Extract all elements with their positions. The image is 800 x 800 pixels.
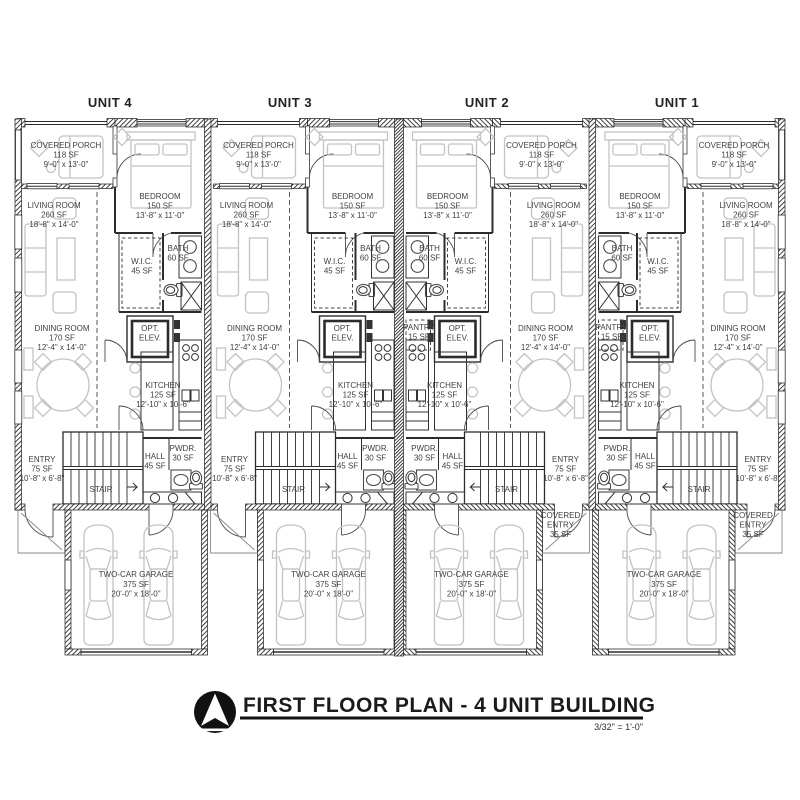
label-entry-u1: ENTRY	[745, 455, 773, 464]
label-covered_porch-u1: COVERED PORCH	[699, 141, 770, 150]
label-dining_room-u4: 170 SF	[49, 334, 75, 343]
label-powder-u1: 30 SF	[606, 454, 627, 463]
label-garage-u4: TWO-CAR GARAGE	[99, 570, 174, 579]
label-hall-u2: 45 SF	[442, 462, 463, 471]
label-entry-u4: 75 SF	[31, 465, 52, 474]
floor-plan-page: UNIT 4COVERED PORCH118 SF9'-0" x 13'-0"B…	[0, 0, 800, 800]
label-dining_room-u1: 12'-4" x 14'-0"	[713, 343, 762, 352]
label-kitchen-u4: 125 SF	[150, 391, 176, 400]
label-dining_room-u3: DINING ROOM	[227, 324, 282, 333]
label-opt_elev-u4: ELEV.	[139, 334, 161, 343]
label-garage-u2: TWO-CAR GARAGE	[434, 570, 509, 579]
label-garage-u3: 20'-0" x 18'-0"	[304, 590, 353, 599]
label-kitchen-u1: KITCHEN	[619, 381, 654, 390]
label-wic-u3: W.I.C.	[324, 257, 346, 266]
label-kitchen-u3: 125 SF	[343, 391, 369, 400]
label-kitchen-u2: KITCHEN	[427, 381, 462, 390]
plan-scale: 3/32" = 1'-0"	[594, 722, 643, 732]
label-powder-u3: PWDR.	[362, 444, 389, 453]
label-stair-u4: STAIR	[90, 485, 113, 494]
label-bedroom-u4: BEDROOM	[139, 192, 181, 201]
label-living_room-u2: 260 SF	[541, 211, 567, 220]
label-bath-u4: 60 SF	[167, 254, 188, 263]
label-opt_elev-u3: ELEV.	[332, 334, 354, 343]
label-pantry-u2: 15 SF	[408, 333, 429, 342]
label-garage-u2: 20'-0" x 18'-0"	[447, 590, 496, 599]
floor-plan-drawing: UNIT 4COVERED PORCH118 SF9'-0" x 13'-0"B…	[0, 0, 800, 800]
label-bath-u4: BATH	[168, 244, 189, 253]
label-wic-u2: 45 SF	[455, 267, 476, 276]
label-garage-u3: TWO-CAR GARAGE	[291, 570, 366, 579]
north-arrow-icon	[194, 691, 236, 733]
label-covered_porch-u4: 118 SF	[53, 151, 78, 160]
label-entry-u4: 10'-8" x 6'-8"	[20, 474, 65, 483]
label-dining_room-u3: 170 SF	[242, 334, 268, 343]
label-covered_entry-u2: ENTRY	[547, 521, 575, 530]
label-entry-u1: 75 SF	[747, 465, 768, 474]
label-opt_elev-u1: ELEV.	[639, 334, 661, 343]
label-powder-u1: PWDR.	[604, 444, 631, 453]
label-living_room-u2: 18'-8" x 14'-0"	[529, 220, 578, 229]
label-bedroom-u2: BEDROOM	[427, 192, 469, 201]
label-powder-u4: 30 SF	[172, 454, 193, 463]
label-dining_room-u2: 12'-4" x 14'-0"	[521, 343, 570, 352]
label-hall-u3: HALL	[337, 452, 358, 461]
unit-title-4: UNIT 4	[88, 95, 132, 110]
label-living_room-u4: LIVING ROOM	[27, 201, 81, 210]
label-powder-u4: PWDR.	[170, 444, 197, 453]
label-covered_entry-u1: COVERED	[733, 511, 773, 520]
label-powder-u2: PWDR.	[411, 444, 438, 453]
label-hall-u1: HALL	[635, 452, 656, 461]
label-dining_room-u3: 12'-4" x 14'-0"	[230, 343, 279, 352]
label-covered_porch-u4: 9'-0" x 13'-0"	[44, 160, 89, 169]
label-dining_room-u1: 170 SF	[725, 334, 751, 343]
label-entry-u2: ENTRY	[552, 455, 580, 464]
label-wic-u1: 45 SF	[647, 267, 668, 276]
label-garage-u1: 20'-0" x 18'-0"	[639, 590, 688, 599]
label-wic-u4: W.I.C.	[131, 257, 153, 266]
fire-wall	[395, 119, 404, 656]
label-dining_room-u4: DINING ROOM	[34, 324, 89, 333]
label-garage-u4: 375 SF	[123, 580, 149, 589]
label-dining_room-u1: DINING ROOM	[710, 324, 765, 333]
label-opt_elev-u2: ELEV.	[447, 334, 469, 343]
label-opt_elev-u1: OPT.	[641, 324, 659, 333]
label-bath-u3: BATH	[360, 244, 381, 253]
label-living_room-u1: 18'-8" x 14'-0"	[721, 220, 770, 229]
label-wic-u3: 45 SF	[324, 267, 345, 276]
label-living_room-u3: 18'-8" x 14'-0"	[222, 220, 271, 229]
unit-title-2: UNIT 2	[465, 95, 509, 110]
label-bedroom-u1: 150 SF	[627, 202, 653, 211]
label-bedroom-u1: BEDROOM	[619, 192, 661, 201]
label-covered_porch-u3: 118 SF	[246, 151, 271, 160]
label-living_room-u4: 18'-8" x 14'-0"	[29, 220, 78, 229]
label-opt_elev-u4: OPT.	[141, 324, 159, 333]
label-bedroom-u3: BEDROOM	[332, 192, 374, 201]
label-living_room-u3: 260 SF	[234, 211, 260, 220]
unit-title-1: UNIT 1	[655, 95, 699, 110]
label-bedroom-u3: 150 SF	[340, 202, 366, 211]
label-entry-u3: 75 SF	[224, 465, 245, 474]
label-covered_porch-u4: COVERED PORCH	[31, 141, 102, 150]
label-kitchen-u3: KITCHEN	[338, 381, 373, 390]
label-opt_elev-u2: OPT.	[449, 324, 467, 333]
label-pantry-u1: PANTRY	[596, 323, 628, 332]
label-covered_porch-u3: COVERED PORCH	[223, 141, 294, 150]
label-garage-u1: 375 SF	[651, 580, 677, 589]
label-kitchen-u4: KITCHEN	[145, 381, 180, 390]
label-bedroom-u2: 13'-8" x 11'-0"	[423, 211, 472, 220]
label-bedroom-u1: 13'-8" x 11'-0"	[616, 211, 665, 220]
label-covered_entry-u2: 35 SF	[550, 530, 571, 539]
label-covered_entry-u1: ENTRY	[740, 521, 768, 530]
label-kitchen-u1: 12'-10" x 10'-6"	[610, 400, 664, 409]
label-wic-u4: 45 SF	[131, 267, 152, 276]
label-dining_room-u2: DINING ROOM	[518, 324, 573, 333]
label-hall-u1: 45 SF	[634, 462, 655, 471]
label-entry-u3: 10'-8" x 6'-8"	[212, 474, 257, 483]
label-hall-u4: 45 SF	[144, 462, 165, 471]
label-entry-u4: ENTRY	[29, 455, 57, 464]
label-bath-u2: BATH	[419, 244, 440, 253]
label-hall-u4: HALL	[145, 452, 166, 461]
label-garage-u2: 375 SF	[459, 580, 485, 589]
label-kitchen-u2: 12'-10" x 10'-6"	[418, 400, 472, 409]
title-underline	[240, 717, 643, 720]
unit-title-3: UNIT 3	[268, 95, 312, 110]
label-dining_room-u2: 170 SF	[533, 334, 559, 343]
label-powder-u3: 30 SF	[365, 454, 386, 463]
label-covered_porch-u2: 9'-0" x 13'-0"	[519, 160, 564, 169]
label-garage-u1: TWO-CAR GARAGE	[627, 570, 702, 579]
label-covered_entry-u1: 35 SF	[742, 530, 763, 539]
label-bath-u1: 60 SF	[611, 254, 632, 263]
label-bath-u2: 60 SF	[419, 254, 440, 263]
label-stair-u2: STAIR	[495, 485, 518, 494]
label-stair-u3: STAIR	[282, 485, 305, 494]
label-kitchen-u4: 12'-10" x 10'-6"	[136, 400, 190, 409]
label-covered_porch-u1: 118 SF	[721, 151, 746, 160]
label-wic-u2: W.I.C.	[455, 257, 477, 266]
label-covered_porch-u1: 9'-0" x 13'-0"	[712, 160, 757, 169]
label-bath-u3: 60 SF	[360, 254, 381, 263]
label-dining_room-u4: 12'-4" x 14'-0"	[37, 343, 86, 352]
label-entry-u2: 75 SF	[555, 465, 576, 474]
label-garage-u3: 375 SF	[316, 580, 342, 589]
label-bedroom-u3: 13'-8" x 11'-0"	[328, 211, 377, 220]
label-entry-u1: 10'-8" x 6'-8"	[736, 474, 781, 483]
label-hall-u2: HALL	[442, 452, 463, 461]
label-hall-u3: 45 SF	[337, 462, 358, 471]
label-pantry-u2: PANTRY	[403, 323, 435, 332]
label-bedroom-u2: 150 SF	[435, 202, 461, 211]
label-kitchen-u2: 125 SF	[432, 391, 458, 400]
label-pantry-u1: 15 SF	[601, 333, 622, 342]
label-powder-u2: 30 SF	[414, 454, 435, 463]
label-entry-u3: ENTRY	[221, 455, 249, 464]
label-living_room-u1: LIVING ROOM	[719, 201, 773, 210]
label-kitchen-u1: 125 SF	[624, 391, 650, 400]
label-bath-u1: BATH	[612, 244, 633, 253]
label-living_room-u2: LIVING ROOM	[527, 201, 581, 210]
label-covered_entry-u2: COVERED	[541, 511, 581, 520]
label-kitchen-u3: 12'-10" x 10'-6"	[329, 400, 383, 409]
label-bedroom-u4: 13'-8" x 11'-0"	[136, 211, 185, 220]
label-stair-u1: STAIR	[688, 485, 711, 494]
label-covered_porch-u3: 9'-0" x 13'-0"	[236, 160, 281, 169]
label-opt_elev-u3: OPT.	[334, 324, 352, 333]
label-covered_porch-u2: COVERED PORCH	[506, 141, 577, 150]
label-entry-u2: 10'-8" x 6'-8"	[543, 474, 588, 483]
label-living_room-u4: 260 SF	[41, 211, 67, 220]
label-garage-u4: 20'-0" x 18'-0"	[111, 590, 160, 599]
label-wic-u1: W.I.C.	[647, 257, 669, 266]
label-bedroom-u4: 150 SF	[147, 202, 173, 211]
plan-title: FIRST FLOOR PLAN - 4 UNIT BUILDING	[243, 694, 655, 717]
label-living_room-u3: LIVING ROOM	[220, 201, 274, 210]
label-living_room-u1: 260 SF	[733, 211, 759, 220]
label-covered_porch-u2: 118 SF	[529, 151, 554, 160]
